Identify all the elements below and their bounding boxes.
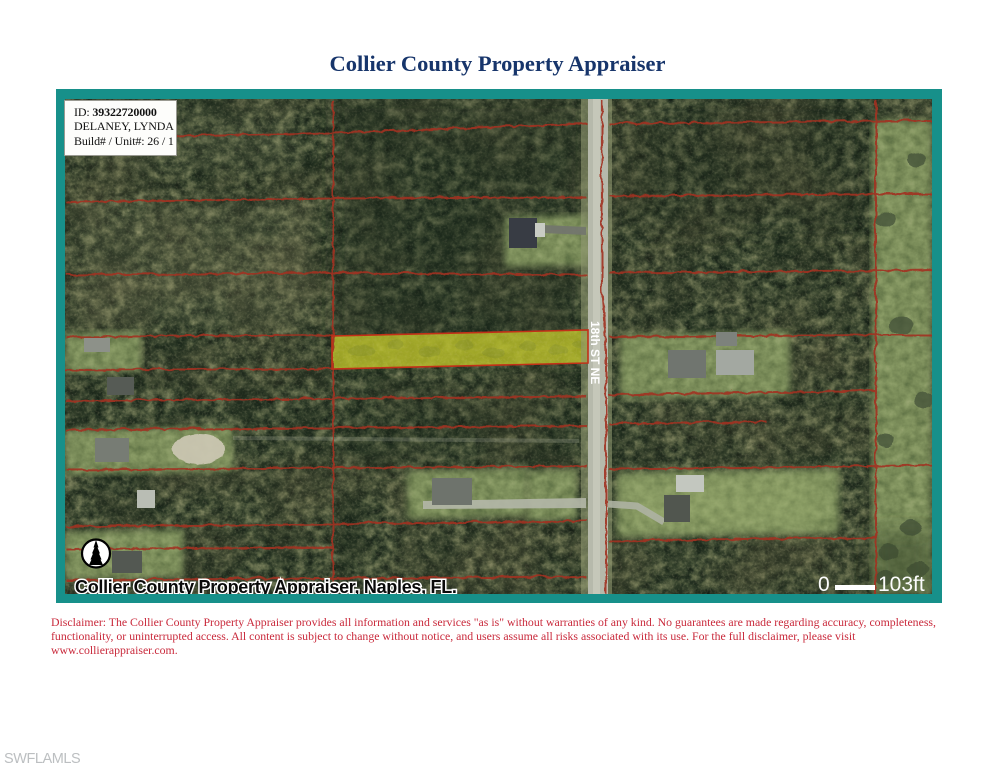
svg-text:Collier County Property Apprai: Collier County Property Appraiser, Naple… <box>75 577 457 594</box>
svg-text:0: 0 <box>818 573 830 594</box>
svg-text:18th ST NE: 18th ST NE <box>588 321 602 384</box>
svg-text:103ft: 103ft <box>878 573 925 594</box>
